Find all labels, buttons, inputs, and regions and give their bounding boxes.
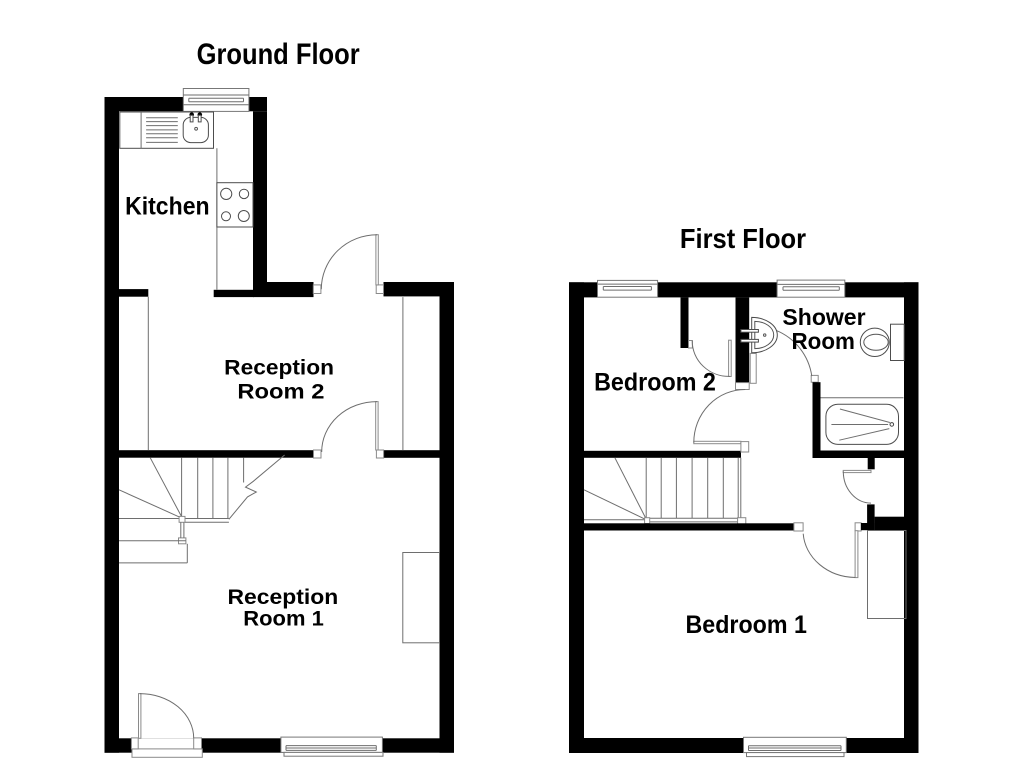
svg-text:Kitchen: Kitchen xyxy=(125,192,210,220)
svg-text:First Floor: First Floor xyxy=(680,223,806,254)
svg-text:Bedroom 1: Bedroom 1 xyxy=(686,611,807,639)
svg-text:Room 1: Room 1 xyxy=(243,607,324,631)
svg-text:Room: Room xyxy=(792,328,855,354)
svg-text:Shower: Shower xyxy=(782,304,865,330)
svg-text:Reception: Reception xyxy=(224,355,334,379)
svg-text:Bedroom 2: Bedroom 2 xyxy=(594,369,716,397)
svg-text:Reception: Reception xyxy=(228,585,339,609)
svg-text:Room 2: Room 2 xyxy=(237,379,324,403)
svg-text:Ground Floor: Ground Floor xyxy=(197,38,360,71)
